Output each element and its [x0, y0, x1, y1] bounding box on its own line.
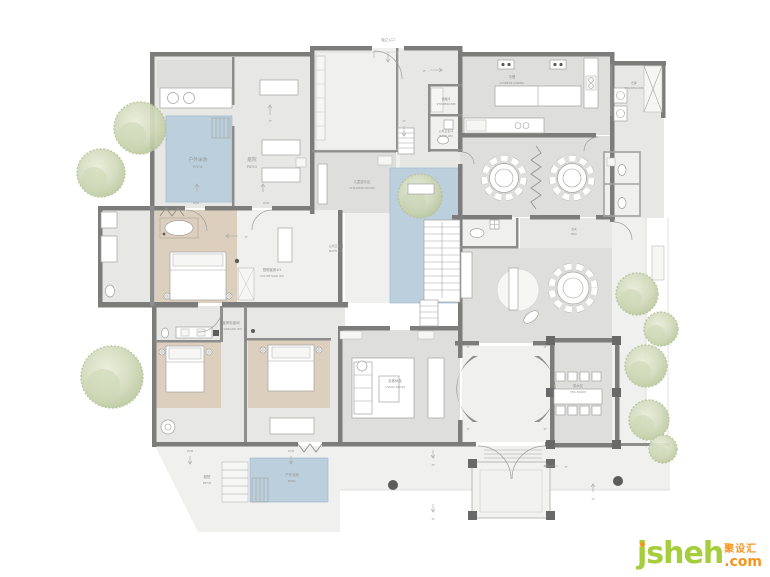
svg-text:1F: 1F: [543, 345, 547, 349]
watermark-j-dot-icon: [640, 542, 645, 547]
watermark-brand: jsheh: [637, 539, 723, 569]
svg-text:W/M: W/M: [193, 201, 200, 205]
svg-text:W/M: W/M: [288, 449, 295, 453]
label-living-en: LIVING ROOM: [385, 385, 406, 389]
floor-plan-drawing: 1F 1F 1F 1F 1F 1F 1F 1F 1F 1F 1F 1F W/M …: [0, 0, 770, 577]
svg-text:1F: 1F: [466, 345, 470, 349]
label-courtyard-en: COURTYARD RM: [260, 274, 284, 278]
label-pool-top-zh: 户外泳池: [189, 156, 208, 163]
svg-text:W/M: W/M: [263, 201, 270, 205]
label-bath-center-zh: 公共卫生间: [329, 244, 344, 248]
court-steps: [420, 300, 438, 326]
label-hall-box-zh: 玄关: [571, 227, 577, 231]
tree: [644, 312, 678, 346]
label-tea-en: TEA ROOM: [569, 390, 586, 394]
label-standard-en: STANDARD RM: [220, 327, 242, 331]
tree: [114, 102, 166, 154]
tree: [625, 345, 667, 387]
watermark-tld: .com: [724, 555, 762, 569]
label-standard-zh: 客房标准间: [223, 320, 241, 325]
svg-text:W/M: W/M: [187, 449, 194, 453]
label-patio-top-zh: 庭院: [247, 156, 257, 163]
label-patio-bottom-en: PATIO: [203, 481, 212, 485]
label-pool-top-en: POOL: [193, 165, 203, 169]
label-storeroom-mid-zh: 储藏间: [442, 97, 451, 101]
label-bath-center-en: BATH RM: [329, 249, 343, 253]
svg-text:1F: 1F: [591, 497, 595, 501]
tree: [398, 174, 442, 218]
tree: [81, 346, 143, 408]
label-children-en: CHILDREN ROOM: [349, 186, 375, 190]
label-pool-bottom-en: POOL: [288, 479, 296, 483]
tree: [629, 400, 669, 440]
svg-text:1F: 1F: [564, 465, 568, 469]
tree: [77, 149, 125, 197]
svg-text:1F: 1F: [543, 427, 547, 431]
label-bath-mid-zh: 公共卫生间: [439, 129, 454, 133]
svg-text:1F: 1F: [431, 517, 435, 521]
svg-text:1F: 1F: [431, 463, 435, 467]
label-children-zh: 儿童游乐区: [354, 179, 372, 184]
label-storeroom-right-en: STOREROOM: [624, 86, 644, 90]
label-dining-zh: 中餐: [509, 74, 516, 79]
tree: [649, 435, 677, 463]
label-entrance: 独立入口: [381, 37, 395, 42]
label-living-zh: 会客休息: [388, 378, 402, 383]
tree: [616, 273, 658, 315]
label-courtyard-zh: 庭院客房#1: [263, 267, 282, 272]
pool-bottom: [222, 458, 328, 502]
label-dining-en: CHINESE DINING: [500, 81, 525, 85]
main-staircase: [424, 220, 460, 302]
svg-text:1F: 1F: [268, 119, 272, 123]
svg-text:1F: 1F: [422, 69, 426, 73]
label-storeroom-right-zh: 仓库: [631, 81, 637, 85]
label-patio-top-en: PATIO: [247, 165, 258, 169]
label-bath-mid-en: BATH RM: [439, 134, 453, 138]
svg-text:1F: 1F: [466, 427, 470, 431]
label-pool-bottom-zh: 户外泳池: [285, 472, 299, 477]
label-storeroom-mid-en: STOREROOM: [436, 102, 456, 106]
hall-steps: [398, 128, 414, 154]
court-tree-table: [408, 184, 434, 194]
svg-text:1F: 1F: [402, 119, 406, 123]
label-tea-zh: 茶水区: [573, 383, 584, 388]
watermark-logo: jsheh 聚设汇 .com: [637, 539, 762, 569]
floor-plan-page: 1F 1F 1F 1F 1F 1F 1F 1F 1F 1F 1F 1F W/M …: [0, 0, 770, 577]
svg-text:1F: 1F: [244, 235, 248, 239]
label-patio-bottom-zh: 庭院: [204, 474, 211, 479]
label-hall-box-en: BOX: [571, 232, 577, 236]
